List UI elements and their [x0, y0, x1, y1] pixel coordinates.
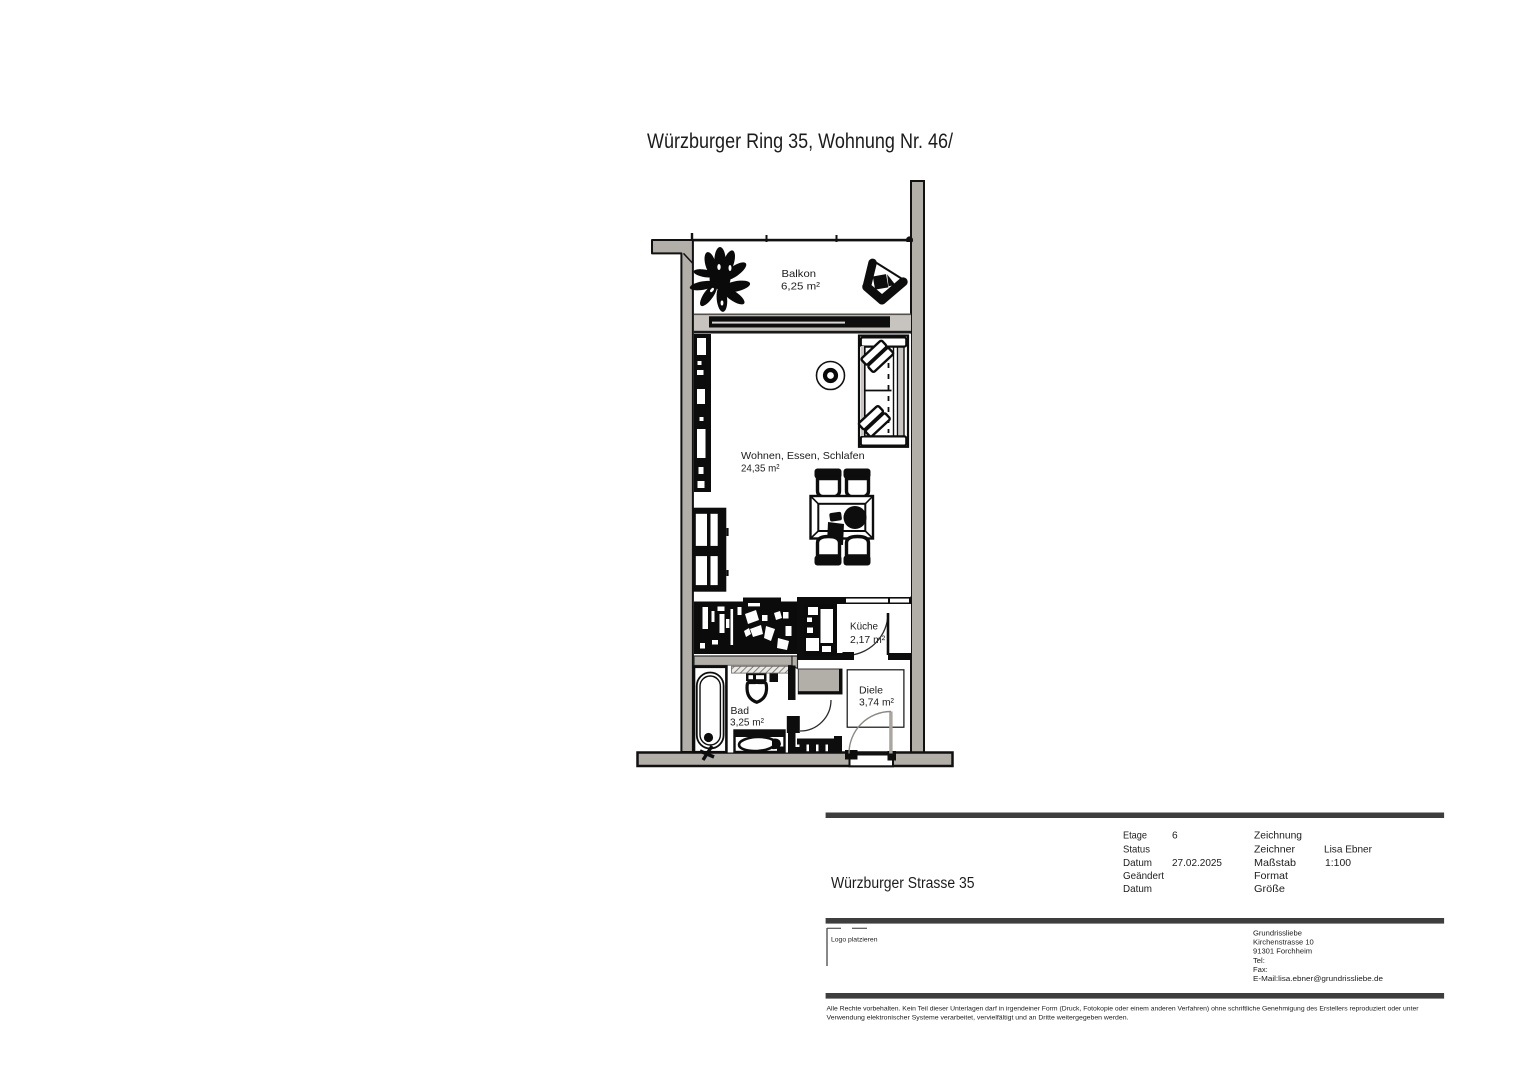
- svg-text:Zeichnung: Zeichnung: [1254, 831, 1302, 842]
- svg-text:E-Mail:lisa.ebner@grundrisslie: E-Mail:lisa.ebner@grundrissliebe.de: [1253, 974, 1383, 983]
- svg-text:91301 Forchheim: 91301 Forchheim: [1253, 947, 1312, 956]
- svg-text:6,25 m²: 6,25 m²: [781, 281, 821, 293]
- svg-text:Diele: Diele: [859, 685, 883, 697]
- svg-text:Fax:: Fax:: [1253, 965, 1268, 974]
- svg-text:Zeichner: Zeichner: [1254, 844, 1296, 855]
- svg-text:Tel:: Tel:: [1253, 956, 1265, 965]
- svg-text:Datum: Datum: [1123, 858, 1152, 869]
- svg-text:Geändert: Geändert: [1123, 871, 1164, 882]
- svg-text:Maßstab: Maßstab: [1254, 858, 1296, 869]
- svg-text:24,35 m²: 24,35 m²: [741, 462, 780, 474]
- svg-text:3,25 m²: 3,25 m²: [730, 717, 764, 729]
- svg-text:Verwendung elektronischer Syst: Verwendung elektronischer Systeme verarb…: [827, 1015, 1129, 1022]
- svg-text:Etage: Etage: [1123, 831, 1147, 842]
- svg-text:Küche: Küche: [850, 621, 878, 633]
- svg-text:Balkon: Balkon: [782, 268, 817, 280]
- svg-text:3,74 m²: 3,74 m²: [859, 697, 894, 709]
- svg-text:Kirchenstrasse 10: Kirchenstrasse 10: [1253, 938, 1314, 947]
- svg-text:Würzburger Strasse 35: Würzburger Strasse 35: [831, 875, 975, 892]
- svg-text:Wohnen, Essen, Schlafen: Wohnen, Essen, Schlafen: [741, 450, 865, 462]
- svg-text:Grundrissliebe: Grundrissliebe: [1253, 929, 1302, 938]
- svg-text:Bad: Bad: [731, 705, 750, 717]
- svg-text:Würzburger Ring 35, Wohnung Nr: Würzburger Ring 35, Wohnung Nr. 46/: [647, 130, 953, 153]
- svg-text:6: 6: [1172, 831, 1178, 842]
- svg-text:Lisa Ebner: Lisa Ebner: [1324, 844, 1373, 855]
- svg-text:27.02.2025: 27.02.2025: [1172, 858, 1222, 869]
- svg-text:Format: Format: [1254, 871, 1288, 882]
- svg-text:Größe: Größe: [1254, 884, 1285, 895]
- svg-text:2,17 m²: 2,17 m²: [850, 634, 886, 646]
- svg-text:Datum: Datum: [1123, 884, 1152, 895]
- svg-text:Alle Rechte vorbehalten. Kein: Alle Rechte vorbehalten. Kein Teil diese…: [827, 1006, 1420, 1013]
- svg-text:Logo platzieren: Logo platzieren: [831, 937, 878, 944]
- svg-text:Status: Status: [1123, 844, 1150, 855]
- svg-text:1:100: 1:100: [1325, 858, 1351, 869]
